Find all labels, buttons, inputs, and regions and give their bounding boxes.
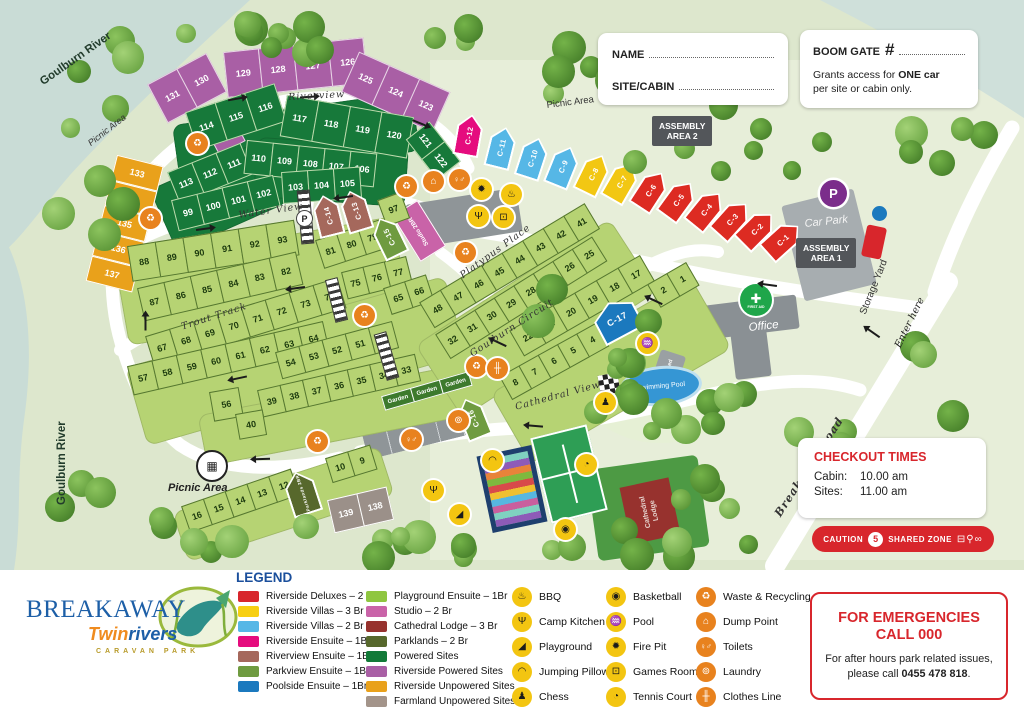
checkout-sites-value: 11.00 am <box>860 486 907 498</box>
logo-title: BREAKAWAY <box>26 596 186 624</box>
checkout-times-card: CHECKOUT TIMES Cabin: 10.00 am Sites: 11… <box>798 438 986 518</box>
office-building-wing <box>730 328 772 380</box>
legend-swatch <box>238 591 259 602</box>
legend-site-type-label: Riverview Ensuite – 1Br <box>266 651 372 662</box>
boom-gate-note: Grants access for ONE car per site or ca… <box>813 68 965 96</box>
tree-icon <box>293 514 318 539</box>
waste-icon: ♻ <box>187 133 208 154</box>
studio-label: Studio 2BR <box>408 216 430 247</box>
playground-icon: ◢ <box>449 504 470 525</box>
cabin-label: C-14 <box>321 206 334 226</box>
tree-icon <box>362 541 395 570</box>
waste-icon: ♻ <box>307 431 328 452</box>
legend-site-type-label: Riverside Unpowered Sites <box>394 681 515 692</box>
legend-site-type-label: Cathedral Lodge – 3 Br <box>394 621 497 632</box>
checkout-cabin-value: 10.00 am <box>860 471 908 483</box>
boom-gate-card: BOOM GATE # Grants access for ONE car pe… <box>800 30 978 108</box>
legend-amenity: ⊡Games Room <box>606 662 698 682</box>
tree-icon <box>85 477 116 508</box>
legend-amenity: ♀♂Toilets <box>696 637 753 657</box>
speed-limit-value: 5 <box>873 534 878 544</box>
car-park-pin-label: P <box>829 186 838 201</box>
emergency-title1: FOR EMERGENCIES <box>812 610 1006 626</box>
tree-icon <box>714 383 744 413</box>
pool-icon: ♒ <box>637 333 658 354</box>
cabin-label: Parklands 2BR <box>294 474 311 512</box>
legend-site-type: Farmland Unpowered Sites <box>366 696 515 707</box>
park-map: Pump Shed Cathedral Lodge Swimming Pool … <box>0 0 1024 570</box>
playground-icon: ◢ <box>512 637 532 657</box>
tree-icon <box>750 118 772 140</box>
logo-subtitle: Twinrivers <box>88 624 177 645</box>
legend-swatch <box>366 681 387 692</box>
tree-icon <box>180 528 208 556</box>
legend-amenity: ♨BBQ <box>512 587 561 607</box>
legend-site-type: Riverview Ensuite – 1Br <box>238 651 372 662</box>
dump-icon: ⌂ <box>423 171 444 192</box>
emergency-phone: 0455 478 818 <box>901 668 967 680</box>
waste-icon: ♻ <box>696 587 716 607</box>
legend-amenity-label: Jumping Pillow <box>539 666 609 678</box>
parking-p-label: P <box>301 214 307 224</box>
firepit-icon: ✹ <box>606 637 626 657</box>
cabin-label: C-2 <box>749 221 765 237</box>
boom-note-line2: per site or cabin only. <box>813 83 912 95</box>
legend-site-type: Parkview Ensuite – 1Br <box>238 666 369 677</box>
cabin-label: C-10 <box>525 148 539 168</box>
legend-amenity: ♻Waste & Recycling <box>696 587 811 607</box>
legend-site-type: Riverside Villas – 2 Br <box>238 621 364 632</box>
brand-logo: BREAKAWAY Twinrivers CARAVAN PARK <box>18 584 238 704</box>
tree-icon <box>391 527 410 546</box>
legend-swatch <box>366 651 387 662</box>
assembly1-line1: ASSEMBLY <box>803 243 849 253</box>
legend-amenity-label: Basketball <box>633 591 681 603</box>
caution-shared-zone-badge: CAUTION 5 SHARED ZONE ⊟⚲∞ <box>812 526 994 552</box>
storage-yard-dot <box>872 206 887 221</box>
tree-icon <box>542 55 575 88</box>
legend-amenity-label: Fire Pit <box>633 641 666 653</box>
first-aid-cross: ✚ <box>751 292 762 305</box>
legend-amenity: ◠Jumping Pillow <box>512 662 609 682</box>
emergency-title2: CALL 000 <box>812 627 1006 643</box>
legend-amenity: ◢Playground <box>512 637 592 657</box>
legend-site-type: Riverside Ensuite – 1Br <box>238 636 371 647</box>
tree-icon <box>176 24 196 44</box>
legend-site-type-label: Farmland Unpowered Sites <box>394 696 515 707</box>
tree-icon <box>635 309 662 336</box>
assembly2-line2: AREA 2 <box>667 131 698 141</box>
caution-text: CAUTION <box>823 535 863 544</box>
toilets-icon: ♀♂ <box>401 429 422 450</box>
emergency-body2-pre: please call <box>847 668 901 680</box>
legend-amenity: ♟Chess <box>512 687 569 707</box>
legend-amenity-label: Waste & Recycling <box>723 591 811 603</box>
goulburn-river-left-label: Goulburn River <box>56 421 68 505</box>
first-aid-label: FIRST AID <box>748 305 765 309</box>
checkout-title: CHECKOUT TIMES <box>814 450 970 464</box>
legend-amenity-label: Toilets <box>723 641 753 653</box>
campkitchen-icon: Ψ <box>468 206 489 227</box>
checkout-sites-label: Sites: <box>814 486 860 498</box>
emergency-body1: For after hours park related issues, <box>825 653 992 665</box>
tree-icon <box>711 161 731 181</box>
bbq-icon: ♨ <box>512 587 532 607</box>
checkout-sites-row: Sites: 11.00 am <box>814 486 970 498</box>
cabin-label: C-15 <box>381 227 397 247</box>
campkitchen-icon: Ψ <box>423 480 444 501</box>
waste-icon: ♻ <box>140 208 161 229</box>
assembly-area-2-box: ASSEMBLY AREA 2 <box>652 116 712 146</box>
legend-site-type: Poolside Ensuite – 1Br <box>238 681 367 692</box>
logo-rivers: rivers <box>128 624 177 644</box>
pool-icon: ♒ <box>606 612 626 632</box>
tree-icon <box>812 132 832 152</box>
legend-amenity-label: Playground <box>539 641 592 653</box>
tree-icon <box>215 525 249 559</box>
cabin-label: C-7 <box>614 174 629 190</box>
tree-icon <box>662 527 692 557</box>
tree-icon <box>149 507 174 532</box>
legend-amenity-label: Clothes Line <box>723 691 781 703</box>
legend-swatch <box>366 606 387 617</box>
tree-icon <box>783 161 801 179</box>
waste-icon: ♻ <box>466 356 487 377</box>
cabin-label: C-17 <box>605 310 629 329</box>
speed-limit-icon: 5 <box>868 532 883 547</box>
legend-site-type: Parklands – 2 Br <box>366 636 468 647</box>
logo-twin: Twin <box>88 624 128 644</box>
legend-swatch <box>366 696 387 707</box>
tennis-icon: ◔ <box>576 454 597 475</box>
chess-icon: ♟ <box>512 687 532 707</box>
tree-icon <box>739 535 758 554</box>
site-40: 40 <box>235 409 267 439</box>
tree-icon <box>951 117 975 141</box>
tree-icon <box>608 348 627 367</box>
tree-icon <box>261 37 282 58</box>
waste-icon: ♻ <box>354 305 375 326</box>
gamesroom-icon: ⊡ <box>606 662 626 682</box>
shared-zone-text: SHARED ZONE <box>888 535 952 544</box>
tree-icon <box>671 489 691 509</box>
tree-icon <box>690 464 720 494</box>
jumpingpillow-icon: ◠ <box>512 662 532 682</box>
legend-site-type-label: Studio – 2 Br <box>394 606 452 617</box>
assembly-area-1-box: ASSEMBLY AREA 1 <box>796 238 856 268</box>
tree-icon <box>929 150 955 176</box>
first-aid-icon: ✚ FIRST AID <box>740 284 772 316</box>
car-park-pin-icon: P <box>820 180 847 207</box>
name-site-card: NAME SITE/CABIN <box>598 33 788 105</box>
legend-amenity: ♒Pool <box>606 612 654 632</box>
legend-swatch <box>238 606 259 617</box>
legend-site-type-label: Riverside Powered Sites <box>394 666 503 677</box>
legend-amenity-label: Pool <box>633 616 654 628</box>
tree-icon <box>42 197 75 230</box>
legend-swatch <box>238 636 259 647</box>
legend-site-type: Riverside Deluxes – 2 Br <box>238 591 376 602</box>
jumpingpillow-icon: ◠ <box>482 450 503 471</box>
cabin-label: C-9 <box>556 159 569 175</box>
legend-site-type: Cathedral Lodge – 3 Br <box>366 621 497 632</box>
legend-site-type: Playground Ensuite – 1Br <box>366 591 507 602</box>
tree-icon <box>234 11 260 37</box>
cabin-label: C-3 <box>724 211 740 227</box>
legend-site-type-label: Powered Sites <box>394 651 458 662</box>
legend-swatch <box>366 636 387 647</box>
legend-site-type-label: Playground Ensuite – 1Br <box>394 591 507 602</box>
picnic-area-icon: ▦ <box>196 450 228 482</box>
tree-icon <box>306 36 334 64</box>
legend-swatch <box>238 621 259 632</box>
tree-icon <box>623 150 647 174</box>
legend-amenity: ◔Tennis Court <box>606 687 692 707</box>
clothesline-icon: ╫ <box>487 358 508 379</box>
gamesroom-icon: ⊡ <box>493 207 514 228</box>
tree-icon <box>899 140 924 165</box>
boom-gate-field-line[interactable] <box>899 42 965 55</box>
legend-amenity-label: Games Room <box>633 666 698 678</box>
legend-site-type: Studio – 2 Br <box>366 606 452 617</box>
cabin-label: C-4 <box>698 202 714 218</box>
laundry-icon: ⊚ <box>448 410 469 431</box>
emergency-box: FOR EMERGENCIES CALL 000 For after hours… <box>810 592 1008 700</box>
cabin-label: C-12 <box>463 126 475 146</box>
legend-swatch <box>238 666 259 677</box>
cabin-label: C-13 <box>349 201 363 221</box>
tree-icon <box>84 165 116 197</box>
tree-icon <box>451 533 475 557</box>
cabin-label: C-1 <box>775 232 791 248</box>
boom-gate-label: BOOM GATE <box>813 46 880 58</box>
legend-amenity-label: BBQ <box>539 591 561 603</box>
name-field-line[interactable] <box>649 45 774 58</box>
cabin-label: C-6 <box>643 182 658 198</box>
name-field-label: NAME <box>612 49 644 61</box>
tree-icon <box>744 141 763 160</box>
tree-icon <box>620 538 654 570</box>
waste-icon: ♻ <box>396 176 417 197</box>
cabin-label: C-11 <box>495 138 508 157</box>
legend-title: LEGEND <box>236 570 292 585</box>
picnic-area-bottom-label: Picnic Area <box>168 482 228 494</box>
legend-amenity: ⌂Dump Point <box>696 612 778 632</box>
emergency-body2-post: . <box>968 668 971 680</box>
site-cabin-field-line[interactable] <box>679 77 774 90</box>
legend-amenity-label: Chess <box>539 691 569 703</box>
legend-amenity: ◉Basketball <box>606 587 681 607</box>
park-map-page: Pump Shed Cathedral Lodge Swimming Pool … <box>0 0 1024 724</box>
legend-site-type: Riverside Unpowered Sites <box>366 681 515 692</box>
road-arrow-icon <box>145 316 147 331</box>
legend-amenity: ΨCamp Kitchen <box>512 612 605 632</box>
boom-note-bold: ONE car <box>898 69 939 81</box>
toilets-icon: ♀♂ <box>696 637 716 657</box>
shared-zone-icons: ⊟⚲∞ <box>957 534 983 545</box>
site-cabin-field-label: SITE/CABIN <box>612 81 674 93</box>
legend-site-type: Powered Sites <box>366 651 458 662</box>
clothesline-icon: ╫ <box>696 687 716 707</box>
legend-site-type: Riverside Powered Sites <box>366 666 503 677</box>
legend-swatch <box>366 666 387 677</box>
legend-amenity: ╫Clothes Line <box>696 687 781 707</box>
campkitchen-icon: Ψ <box>512 612 532 632</box>
laundry-icon: ⊚ <box>696 662 716 682</box>
legend-amenity-label: Camp Kitchen <box>539 616 605 628</box>
tree-icon <box>618 383 650 415</box>
legend-site-type-label: Parkview Ensuite – 1Br <box>266 666 369 677</box>
legend-amenity-label: Tennis Court <box>633 691 692 703</box>
chess-icon: ♟ <box>595 392 616 413</box>
legend-swatch <box>238 681 259 692</box>
tennis-icon: ◔ <box>606 687 626 707</box>
dump-icon: ⌂ <box>696 612 716 632</box>
legend-swatch <box>366 621 387 632</box>
legend-site-type-label: Riverside Deluxes – 2 Br <box>266 591 376 602</box>
toilets-icon: ♀♂ <box>449 169 470 190</box>
site-strip-l12: 40 <box>236 409 267 439</box>
legend-site-type: Riverside Villas – 3 Br <box>238 606 364 617</box>
legend-amenity-label: Laundry <box>723 666 761 678</box>
tree-icon <box>719 498 740 519</box>
checkout-cabin-row: Cabin: 10.00 am <box>814 471 970 483</box>
legend-band: BREAKAWAY Twinrivers CARAVAN PARK LEGEND… <box>0 570 1024 724</box>
site-104: 104 <box>307 168 336 202</box>
emergency-body: For after hours park related issues, ple… <box>812 652 1006 682</box>
tree-icon <box>454 14 483 43</box>
checkout-cabin-label: Cabin: <box>814 471 860 483</box>
assembly2-line1: ASSEMBLY <box>659 121 705 131</box>
legend-site-type-label: Parklands – 2 Br <box>394 636 468 647</box>
legend-site-type-label: Riverside Villas – 2 Br <box>266 621 364 632</box>
cabin-label: C-8 <box>586 166 600 182</box>
bbq-icon: ♨ <box>501 184 522 205</box>
boom-note-pre: Grants access for <box>813 69 898 81</box>
logo-tagline: CARAVAN PARK <box>96 648 199 655</box>
basketball-icon: ◉ <box>555 519 576 540</box>
firepit-icon: ✹ <box>471 179 492 200</box>
cabin-label: C-5 <box>671 192 686 208</box>
basketball-icon: ◉ <box>606 587 626 607</box>
legend-swatch <box>366 591 387 602</box>
legend-amenity: ✹Fire Pit <box>606 637 666 657</box>
legend-swatch <box>238 651 259 662</box>
legend-site-type-label: Riverside Villas – 3 Br <box>266 606 364 617</box>
legend-site-type-label: Poolside Ensuite – 1Br <box>266 681 367 692</box>
assembly1-line2: AREA 1 <box>811 253 842 263</box>
legend-amenity: ⊚Laundry <box>696 662 761 682</box>
boom-gate-hash: # <box>885 40 894 60</box>
legend-amenity-label: Dump Point <box>723 616 778 628</box>
legend-site-type-label: Riverside Ensuite – 1Br <box>266 636 371 647</box>
